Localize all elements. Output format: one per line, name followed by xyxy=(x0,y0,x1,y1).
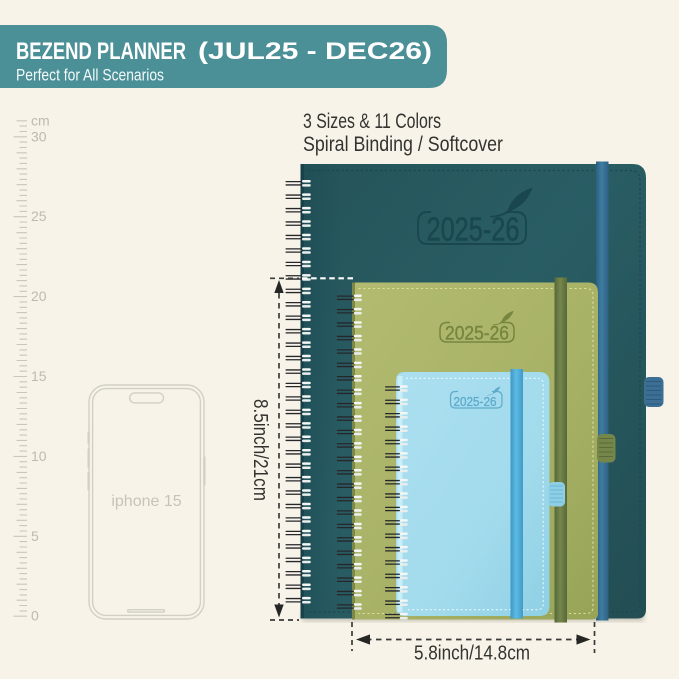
svg-text:3 Sizes & 11 Colors: 3 Sizes & 11 Colors xyxy=(303,110,441,133)
svg-text:2025-26: 2025-26 xyxy=(445,323,509,345)
svg-text:20: 20 xyxy=(31,288,47,304)
svg-text:(JUL25 - DEC26): (JUL25 - DEC26) xyxy=(198,38,432,65)
svg-text:2025-26: 2025-26 xyxy=(427,211,520,248)
svg-text:5.8inch/14.8cm: 5.8inch/14.8cm xyxy=(414,642,530,665)
svg-text:8.5inch/21cm: 8.5inch/21cm xyxy=(249,399,271,501)
svg-text:Spiral Binding / Softcover: Spiral Binding / Softcover xyxy=(303,133,503,156)
svg-text:0: 0 xyxy=(31,608,39,624)
svg-text:2025-26: 2025-26 xyxy=(454,394,497,409)
svg-text:10: 10 xyxy=(31,448,47,464)
svg-text:30: 30 xyxy=(31,128,47,144)
svg-text:15: 15 xyxy=(31,368,47,384)
svg-text:BEZEND PLANNER: BEZEND PLANNER xyxy=(16,38,186,65)
svg-text:5: 5 xyxy=(31,528,39,544)
svg-text:25: 25 xyxy=(31,208,47,224)
svg-text:Perfect for All Scenarios: Perfect for All Scenarios xyxy=(16,66,164,85)
svg-text:iphone 15: iphone 15 xyxy=(111,493,181,510)
svg-text:cm: cm xyxy=(31,112,50,128)
